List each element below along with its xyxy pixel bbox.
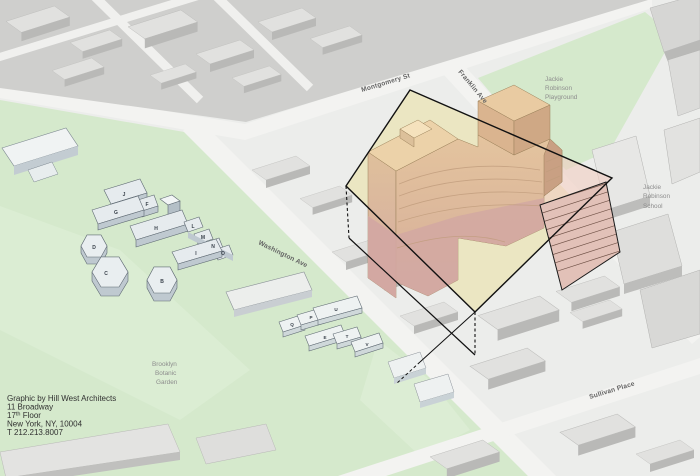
building-letter-m: M (201, 235, 205, 241)
building-letter-d: D (92, 245, 96, 251)
building-letter-f: F (145, 202, 148, 208)
playground-label-line3: Playground (545, 94, 578, 101)
building-letter-o: O (221, 251, 225, 257)
playground-label-line1: Jackie (545, 76, 564, 83)
massing-diagram: J F G H L M N O I D C B Q P U E T V (0, 0, 700, 476)
building-letter-j: J (123, 192, 126, 198)
garden-label-line1: Brooklyn (152, 361, 177, 368)
attribution-phone: T 212.213.8007 (7, 428, 63, 437)
building-letter-l: L (191, 224, 194, 230)
playground-label-line2: Robinson (545, 85, 572, 92)
building-letter-n: N (211, 244, 215, 250)
garden-label-line3: Garden (156, 379, 178, 386)
school-label-line1: Jackie (643, 184, 662, 191)
greenhouse-letter-t: T (346, 334, 349, 339)
building-letter-h: H (154, 226, 158, 232)
building-letter-c: C (104, 271, 108, 277)
building-letter-b: B (160, 279, 164, 285)
greenhouse-letter-q: Q (290, 322, 294, 327)
greenhouse-letter-p: P (309, 315, 312, 320)
school-label-line3: School (643, 203, 663, 210)
site-plan-canvas: J F G H L M N O I D C B Q P U E T V (0, 0, 700, 476)
greenhouse-letter-e: E (323, 335, 326, 340)
school-label-line2: Robinson (643, 193, 670, 200)
garden-label-line2: Botanic (155, 370, 177, 377)
building-letter-g: G (114, 210, 118, 216)
